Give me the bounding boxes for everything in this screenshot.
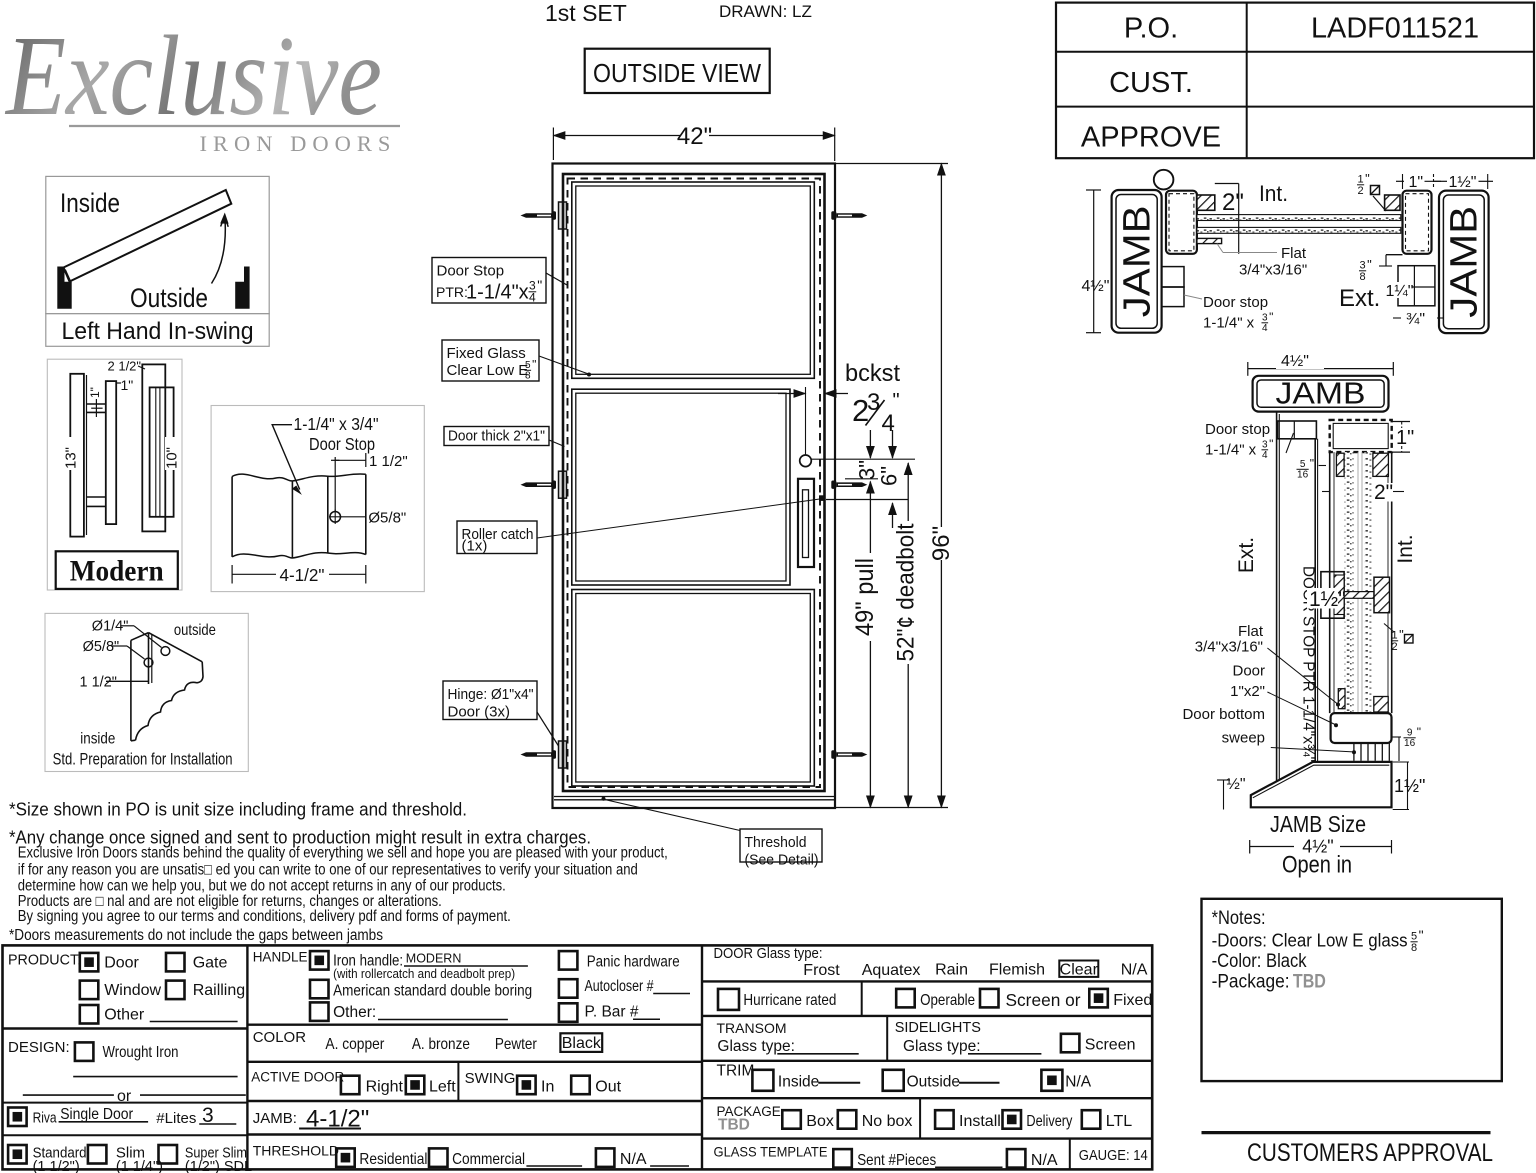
- svg-text:4: 4: [529, 291, 536, 305]
- svg-text:Sent #Pieces: Sent #Pieces: [857, 1152, 936, 1169]
- svg-text:Door: Door: [104, 955, 139, 972]
- svg-text:P. Bar #: P. Bar #: [585, 1004, 639, 1021]
- svg-text:Other:: Other:: [333, 1004, 376, 1021]
- svg-text:DOOR Glass type:: DOOR Glass type:: [714, 945, 823, 962]
- svg-text:1½": 1½": [1449, 174, 1477, 191]
- svg-text:determine how can we help you,: determine how can we help you, but we do…: [18, 878, 506, 895]
- svg-text:1 1/2": 1 1/2": [369, 453, 408, 470]
- svg-text:Riva: Riva: [33, 1110, 58, 1127]
- svg-text:P.O.: P.O.: [1124, 13, 1178, 45]
- svg-text:Ext.: Ext.: [1339, 285, 1380, 312]
- svg-text:4½": 4½": [1281, 353, 1309, 370]
- svg-text:N/A: N/A: [620, 1151, 647, 1168]
- svg-text:1-1/4" x: 1-1/4" x: [1203, 315, 1255, 332]
- svg-text:": ": [1419, 927, 1424, 943]
- svg-text:OUTSIDE VIEW: OUTSIDE VIEW: [593, 58, 761, 88]
- svg-text:Frost: Frost: [803, 962, 840, 979]
- svg-text:5: 5: [525, 360, 531, 371]
- svg-text:HANDLE: HANDLE: [253, 950, 308, 965]
- svg-text:#Lites: #Lites: [156, 1110, 196, 1127]
- svg-text:8: 8: [1411, 942, 1417, 954]
- svg-text:Ext.: Ext.: [1235, 537, 1258, 573]
- svg-text:16: 16: [1297, 470, 1309, 481]
- svg-text:LTL: LTL: [1106, 1113, 1132, 1130]
- svg-text:1½": 1½": [1309, 588, 1346, 611]
- svg-text:N/A: N/A: [1031, 1152, 1058, 1169]
- svg-text:Door stop: Door stop: [1205, 421, 1270, 438]
- svg-text:Black: Black: [562, 1035, 602, 1052]
- svg-text:bckst: bckst: [845, 360, 900, 387]
- svg-text:sweep: sweep: [1222, 730, 1265, 747]
- svg-text:JAMB: JAMB: [1116, 205, 1158, 317]
- svg-text:SIDELIGHTS: SIDELIGHTS: [895, 1020, 981, 1036]
- svg-text:4-1/2": 4-1/2": [280, 565, 325, 585]
- svg-text:Gate: Gate: [193, 955, 228, 972]
- svg-text:(1 1/2"): (1 1/2"): [33, 1159, 80, 1173]
- svg-text:Door thick 2"x1": Door thick 2"x1": [448, 429, 545, 445]
- svg-text:Door Stop: Door Stop: [309, 434, 375, 454]
- svg-text:Rain: Rain: [935, 962, 968, 979]
- svg-text:Flemish: Flemish: [989, 962, 1045, 979]
- svg-text:Single Door: Single Door: [60, 1106, 133, 1123]
- svg-text:Clear Low E: Clear Low E: [447, 362, 529, 379]
- svg-text:Other: Other: [104, 1007, 145, 1024]
- svg-text:5: 5: [1411, 931, 1417, 943]
- svg-text:Threshold: Threshold: [745, 834, 807, 851]
- svg-text:2": 2": [1374, 481, 1393, 504]
- svg-text:N/A: N/A: [1121, 962, 1148, 979]
- svg-text:10": 10": [164, 447, 181, 469]
- svg-text:Screen: Screen: [1085, 1037, 1136, 1054]
- svg-text:Left Hand In-swing: Left Hand In-swing: [62, 318, 254, 345]
- svg-text:Operable: Operable: [920, 992, 975, 1009]
- svg-text:LADF011521: LADF011521: [1311, 13, 1479, 45]
- svg-text:Door: Door: [1232, 663, 1265, 680]
- svg-text:3/4"x3/16": 3/4"x3/16": [1239, 262, 1307, 279]
- svg-text:3: 3: [1262, 313, 1268, 324]
- svg-text:-Color: Black: -Color: Black: [1212, 951, 1307, 972]
- svg-text:3/4"x3/16": 3/4"x3/16": [1195, 639, 1263, 656]
- svg-text:American standard double borin: American standard double boring: [333, 983, 532, 1000]
- svg-text:DESIGN:: DESIGN:: [8, 1039, 70, 1056]
- svg-text:Flat: Flat: [1281, 245, 1307, 262]
- svg-text:CUSTOMERS APPROVAL: CUSTOMERS APPROVAL: [1247, 1139, 1493, 1167]
- svg-text:Glass type:: Glass type:: [903, 1038, 981, 1055]
- svg-text:6": 6": [877, 466, 902, 486]
- svg-text:9: 9: [1407, 728, 1413, 739]
- svg-text:13": 13": [63, 447, 80, 469]
- svg-text:Inside: Inside: [60, 188, 120, 218]
- svg-text:Aquatex: Aquatex: [862, 962, 921, 979]
- svg-text:*Notes:: *Notes:: [1212, 908, 1266, 929]
- svg-text:1½": 1½": [1394, 776, 1425, 796]
- svg-text:1st SET: 1st SET: [545, 0, 627, 26]
- svg-text:-Package:: -Package:: [1212, 972, 1290, 993]
- svg-text:THRESHOLD: THRESHOLD: [253, 1143, 339, 1159]
- svg-text:(1/2") SDL: (1/2") SDL: [185, 1159, 252, 1173]
- svg-text:": ": [537, 277, 542, 293]
- svg-text:4½": 4½": [1082, 278, 1110, 295]
- svg-text:Left: Left: [429, 1079, 456, 1096]
- svg-text:1-1/4" x 3/4": 1-1/4" x 3/4": [294, 414, 379, 434]
- svg-text:1 1/2": 1 1/2": [80, 675, 117, 691]
- svg-text:Door bottom: Door bottom: [1182, 706, 1265, 723]
- svg-text:A. copper: A. copper: [325, 1036, 385, 1053]
- svg-text:Door stop: Door stop: [1203, 294, 1268, 311]
- svg-text:JAMB: JAMB: [1444, 206, 1486, 318]
- svg-text:(1 1/4"): (1 1/4"): [116, 1159, 163, 1173]
- svg-text:": ": [1310, 457, 1314, 471]
- svg-text:3: 3: [1262, 440, 1268, 451]
- svg-text:": ": [1417, 725, 1421, 739]
- svg-text:4: 4: [1262, 323, 1268, 334]
- svg-text:2: 2: [1392, 641, 1398, 653]
- svg-text:1: 1: [1358, 174, 1364, 186]
- svg-text:Fixed: Fixed: [1113, 992, 1152, 1009]
- svg-text:Autocloser #: Autocloser #: [585, 978, 654, 995]
- svg-text:1-1/4" x: 1-1/4" x: [1205, 442, 1257, 459]
- svg-text:½": ½": [1227, 776, 1246, 793]
- svg-text:Ø1/4": Ø1/4": [92, 619, 129, 635]
- svg-text:Screen or: Screen or: [1006, 990, 1081, 1010]
- svg-text:1": 1": [1396, 427, 1414, 449]
- svg-text:(1x): (1x): [462, 538, 488, 555]
- svg-text:Outside: Outside: [130, 283, 208, 313]
- svg-text:": ": [893, 390, 900, 412]
- svg-text:2: 2: [1358, 185, 1364, 197]
- svg-text:Pewter: Pewter: [495, 1036, 538, 1053]
- svg-text:": ": [1269, 437, 1273, 451]
- svg-text:4: 4: [1262, 450, 1268, 461]
- svg-text:5: 5: [1300, 459, 1306, 470]
- svg-text:1": 1": [121, 377, 134, 393]
- svg-text:In: In: [541, 1079, 554, 1096]
- svg-text:Modern: Modern: [70, 555, 164, 588]
- svg-text:": ": [1365, 171, 1370, 186]
- svg-text:8: 8: [525, 371, 531, 382]
- svg-text:2": 2": [1222, 189, 1244, 216]
- svg-text:Exclusive: Exclusive: [4, 12, 382, 139]
- svg-text:inside: inside: [80, 731, 115, 748]
- svg-text:Int.: Int.: [1394, 534, 1417, 563]
- svg-text:Delivery: Delivery: [1026, 1113, 1072, 1130]
- svg-text:": ": [532, 358, 536, 372]
- svg-text:(See Detail): (See Detail): [745, 852, 819, 869]
- svg-text:49" pull: 49" pull: [851, 558, 879, 636]
- svg-text:Install: Install: [959, 1113, 1001, 1130]
- svg-text:JAMB Size: JAMB Size: [1270, 811, 1366, 837]
- svg-text:Glass type:: Glass type:: [717, 1038, 795, 1055]
- svg-text:96": 96": [928, 526, 955, 561]
- svg-text:Railling: Railling: [193, 982, 245, 999]
- svg-text:Commercial: Commercial: [452, 1151, 525, 1168]
- svg-text:16: 16: [1404, 738, 1416, 749]
- svg-text:ACTIVE DOOR: ACTIVE DOOR: [251, 1070, 344, 1085]
- svg-text:Ø5/8": Ø5/8": [368, 510, 406, 527]
- svg-text:DRAWN: LZ: DRAWN: LZ: [719, 2, 812, 21]
- svg-text:Int.: Int.: [1259, 181, 1288, 206]
- svg-text:": ": [1269, 310, 1273, 324]
- svg-text:52"¢ deadbolt: 52"¢ deadbolt: [893, 523, 920, 661]
- svg-text:-Doors: Clear Low E glass: -Doors: Clear Low E glass: [1212, 930, 1408, 951]
- svg-text:TBD: TBD: [718, 1117, 750, 1134]
- svg-text:APPROVE: APPROVE: [1081, 122, 1221, 154]
- svg-text:Clear: Clear: [1060, 961, 1099, 978]
- svg-text:2 1/2": 2 1/2": [108, 359, 142, 374]
- svg-text:IRON DOORS: IRON DOORS: [200, 131, 397, 156]
- svg-text:": ": [1367, 257, 1372, 272]
- svg-text:3: 3: [1360, 260, 1366, 272]
- svg-text:Panic hardware: Panic hardware: [587, 954, 680, 971]
- svg-text:PTR:: PTR:: [436, 284, 468, 300]
- svg-text:Open in: Open in: [1282, 852, 1352, 879]
- svg-text:1"x2": 1"x2": [1230, 683, 1265, 700]
- svg-text:Window: Window: [104, 982, 161, 999]
- svg-text:(with rollercatch and deadbolt: (with rollercatch and deadbolt prep): [333, 967, 515, 981]
- svg-text:Ø5/8": Ø5/8": [83, 639, 120, 655]
- svg-text:Wrought Iron: Wrought Iron: [103, 1044, 179, 1061]
- svg-text:By signing you agree to our te: By signing you agree to our terms and co…: [18, 908, 511, 925]
- svg-text:Residential: Residential: [359, 1151, 427, 1168]
- svg-text:SWING: SWING: [465, 1070, 516, 1087]
- svg-text:Hurricane rated: Hurricane rated: [743, 992, 836, 1009]
- svg-text:MODERN: MODERN: [406, 952, 462, 966]
- svg-text:Outside: Outside: [907, 1074, 960, 1091]
- svg-text:1¼": 1¼": [1386, 283, 1414, 300]
- svg-text:No box: No box: [862, 1113, 913, 1130]
- svg-text:1-1/4"x: 1-1/4"x: [466, 282, 529, 304]
- svg-text:CUST.: CUST.: [1109, 67, 1193, 99]
- svg-text:Door Stop: Door Stop: [437, 263, 505, 280]
- svg-text:1: 1: [1392, 630, 1398, 642]
- svg-text:GLASS TEMPLATE: GLASS TEMPLATE: [714, 1144, 828, 1160]
- svg-text:Door (3x): Door (3x): [448, 704, 511, 721]
- svg-text:JAMB:: JAMB:: [253, 1110, 297, 1127]
- svg-text:JAMB: JAMB: [1276, 376, 1366, 411]
- svg-text:A. bronze: A. bronze: [412, 1036, 470, 1053]
- svg-text:TBD: TBD: [1293, 972, 1326, 993]
- svg-text:if for any reason you are unsa: if for any reason you are unsatis□ ed yo…: [18, 861, 638, 878]
- svg-text:COLOR: COLOR: [253, 1029, 307, 1046]
- svg-text:Out: Out: [595, 1079, 621, 1096]
- svg-text:Flat: Flat: [1238, 623, 1264, 640]
- svg-text:Exclusive Iron Doors stands be: Exclusive Iron Doors stands behind the q…: [18, 844, 668, 861]
- svg-text:": ": [1399, 627, 1404, 642]
- svg-text:Std. Preparation for Installat: Std. Preparation for Installation: [53, 751, 233, 769]
- svg-text:or: or: [117, 1088, 132, 1105]
- svg-text:1": 1": [88, 387, 102, 398]
- svg-text:8: 8: [1360, 271, 1366, 283]
- svg-text:*Doors measurements do not inc: *Doors measurements do not include the g…: [9, 927, 383, 944]
- svg-text:Box: Box: [806, 1113, 834, 1130]
- svg-text:¾": ¾": [1406, 311, 1425, 328]
- svg-text:3: 3: [867, 389, 880, 416]
- svg-text:TRANSOM: TRANSOM: [717, 1020, 787, 1036]
- svg-text:Fixed Glass: Fixed Glass: [447, 345, 526, 362]
- svg-text:*Size shown in PO is unit size: *Size shown in PO is unit size including…: [9, 799, 467, 820]
- svg-text:PRODUCT:: PRODUCT:: [8, 953, 81, 969]
- svg-text:Inside: Inside: [778, 1074, 819, 1091]
- svg-text:1": 1": [1409, 174, 1424, 191]
- svg-text:outside: outside: [174, 622, 216, 639]
- svg-text:GAUGE: 14: GAUGE: 14: [1079, 1147, 1148, 1164]
- svg-text:42": 42": [677, 123, 712, 150]
- svg-text:Right: Right: [366, 1079, 404, 1096]
- svg-text:TRIM: TRIM: [717, 1063, 755, 1080]
- svg-text:N/A: N/A: [1065, 1074, 1092, 1091]
- svg-text:Hinge: Ø1"x4": Hinge: Ø1"x4": [448, 686, 534, 703]
